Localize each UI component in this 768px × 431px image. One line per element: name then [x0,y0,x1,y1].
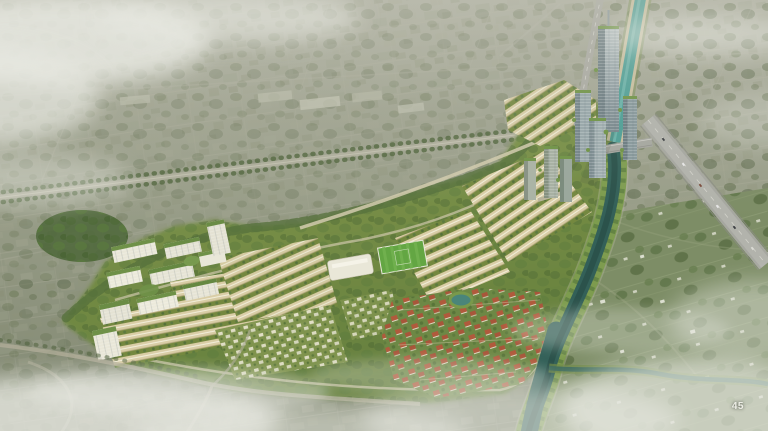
masterplan-render-svg [0,0,768,431]
page-number: 45 [732,401,744,412]
pond [450,293,472,307]
aerial-render: 45 [0,0,768,431]
